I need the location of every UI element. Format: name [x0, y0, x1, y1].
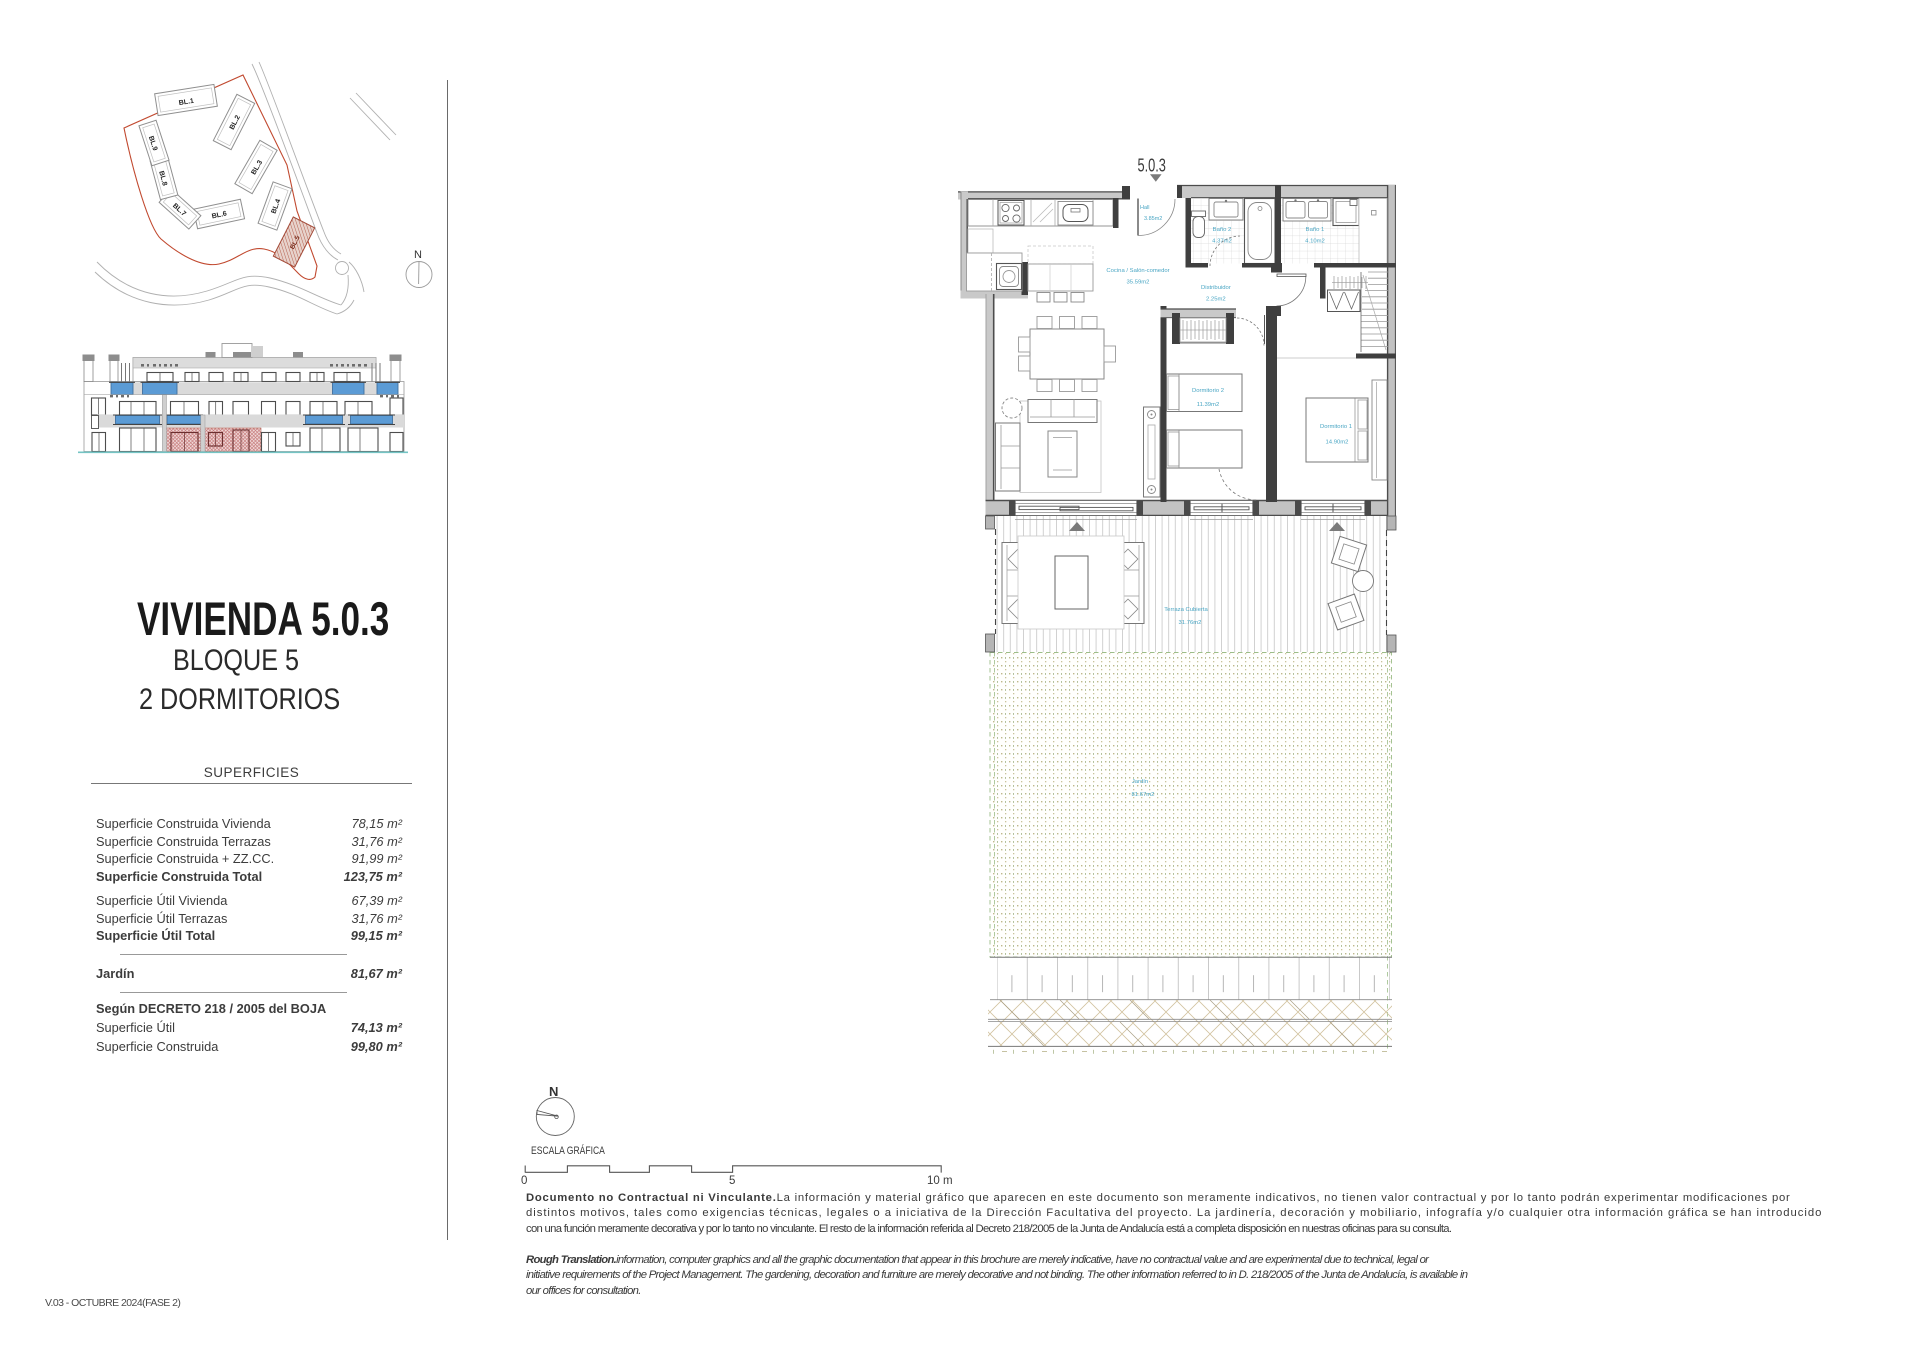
svg-text:4.10m2: 4.10m2	[1305, 239, 1325, 245]
svg-text:0: 0	[521, 1175, 527, 1187]
svg-text:81.67m2: 81.67m2	[1132, 792, 1155, 798]
svg-text:N: N	[414, 249, 422, 261]
svg-text:Jardín: Jardín	[1132, 779, 1148, 785]
svg-text:3.85m2: 3.85m2	[1144, 216, 1162, 222]
svg-text:Distribuidor: Distribuidor	[1201, 285, 1231, 291]
svg-text:5.0.3: 5.0.3	[1137, 156, 1166, 176]
svg-text:Hall: Hall	[1140, 205, 1149, 211]
svg-text:14.90m2: 14.90m2	[1326, 440, 1349, 446]
svg-text:4.37m2: 4.37m2	[1212, 239, 1232, 245]
svg-text:Cocina / Salón-comedor: Cocina / Salón-comedor	[1106, 268, 1169, 274]
svg-text:Dormitorio 1: Dormitorio 1	[1320, 424, 1352, 430]
svg-text:5: 5	[729, 1175, 735, 1187]
svg-text:Terraza Cubierta: Terraza Cubierta	[1164, 607, 1208, 613]
svg-text:Baño 2: Baño 2	[1213, 227, 1232, 233]
svg-text:Baño 1: Baño 1	[1306, 227, 1325, 233]
svg-text:35.59m2: 35.59m2	[1127, 280, 1150, 286]
svg-text:N: N	[549, 1084, 558, 1099]
svg-text:10 m: 10 m	[927, 1175, 953, 1187]
svg-text:2.25m2: 2.25m2	[1206, 297, 1226, 303]
svg-text:11.39m2: 11.39m2	[1197, 402, 1220, 408]
svg-text:31.76m2: 31.76m2	[1179, 620, 1202, 626]
svg-text:Dormitorio 2: Dormitorio 2	[1192, 388, 1224, 394]
